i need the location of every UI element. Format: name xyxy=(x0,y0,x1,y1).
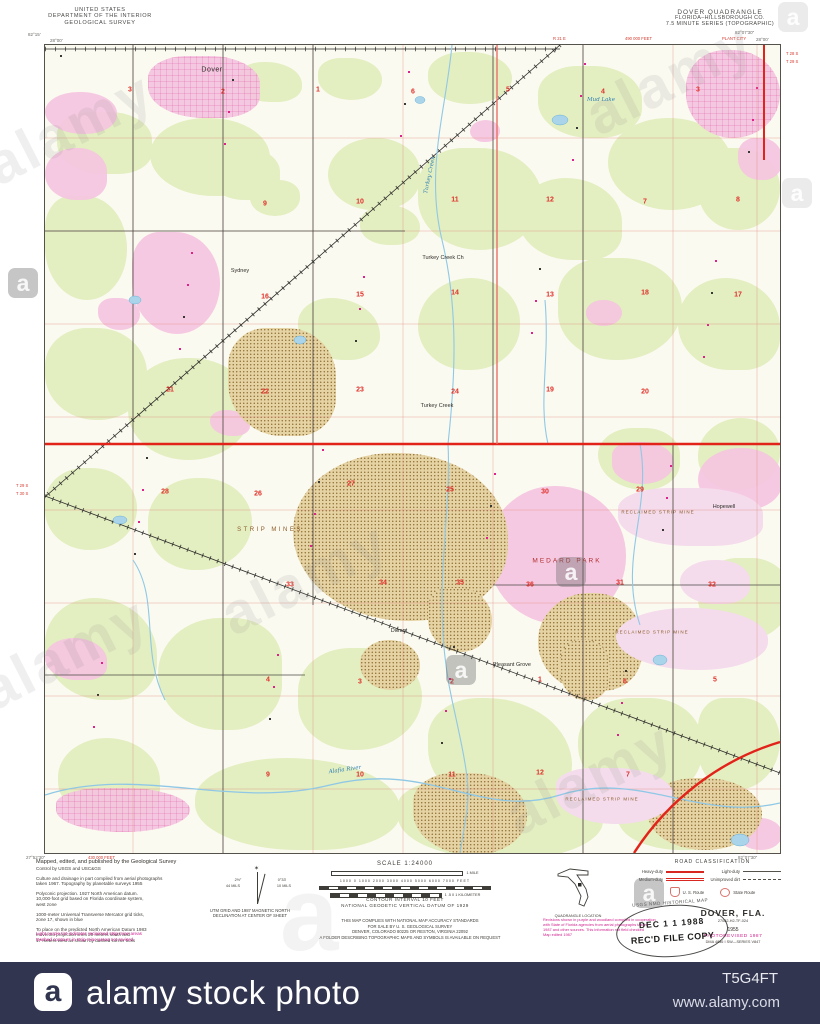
light-duty-sample xyxy=(743,871,781,872)
corner-coordinate: 28°00' xyxy=(50,38,63,43)
legend-title: ROAD CLASSIFICATION xyxy=(630,859,795,865)
corner-coordinate: 82°15' xyxy=(28,32,41,37)
credit-line: taken 1967. Topography by planetable sur… xyxy=(36,881,306,887)
legend-label: State Route xyxy=(733,890,755,895)
place-label: Sydney xyxy=(231,268,249,274)
unimproved-dirt-sample xyxy=(743,879,781,880)
township-label: T 29 S xyxy=(786,60,798,65)
corner-coordinate: 28°00' xyxy=(756,37,769,42)
heavy-duty-sample xyxy=(666,871,704,873)
alamy-logo-watermark: a xyxy=(446,655,476,685)
section-number: 11 xyxy=(451,197,458,204)
credit-line: west zone xyxy=(36,902,306,908)
file-copy-stamp: USGS NMD HISTORICAL MAP DEC 1 1 1988 REC… xyxy=(614,897,730,961)
place-label: Turkey Creek Ch xyxy=(422,255,463,261)
section-number: 6 xyxy=(411,89,415,96)
section-number: 6 xyxy=(623,679,627,686)
section-number: 23 xyxy=(356,387,364,394)
section-number: 15 xyxy=(356,292,364,299)
declination-value: 44 MILS xyxy=(218,884,248,888)
place-label: RECLAIMED STRIP MINE xyxy=(615,630,688,635)
section-number: 22 xyxy=(261,389,269,396)
alamy-logo-watermark: a xyxy=(634,878,664,908)
us-route-shield-icon xyxy=(670,887,680,897)
star-icon: ✶ xyxy=(254,865,259,872)
section-number: 36 xyxy=(526,582,534,589)
scale-bar xyxy=(319,886,491,891)
section-number: 26 xyxy=(254,491,262,498)
section-number: 19 xyxy=(546,387,554,394)
section-number: 34 xyxy=(379,580,387,587)
section-number: 21 xyxy=(166,387,174,394)
section-number: 10 xyxy=(356,772,364,779)
alamy-footer-bar: a alamy stock photo T5G4FT www.alamy.com xyxy=(0,962,820,1024)
place-label: STRIP MINES xyxy=(237,527,303,533)
section-number: 1 xyxy=(538,677,542,684)
map-linework xyxy=(45,45,780,853)
section-number: 31 xyxy=(616,580,624,587)
place-label: Durant xyxy=(391,628,408,634)
strip-mine-note-line: Dashed contours in strip mine areas not … xyxy=(36,937,142,943)
alamy-url: www.alamy.com xyxy=(673,994,780,1011)
section-number: 7 xyxy=(643,199,647,206)
section-number: 10 xyxy=(356,199,364,206)
section-number: 5 xyxy=(713,677,717,684)
credit-line: Control by USGS and USC&GS xyxy=(36,866,306,872)
declination-value: 2½° xyxy=(223,878,253,882)
agency-header: UNITED STATES DEPARTMENT OF THE INTERIOR… xyxy=(20,7,180,26)
stock-photo-page: UNITED STATES DEPARTMENT OF THE INTERIOR… xyxy=(0,0,820,1024)
section-number: 3 xyxy=(358,679,362,686)
section-number: 8 xyxy=(736,197,740,204)
feet-grid-label: 490 000 FEET xyxy=(625,37,652,42)
section-number: 1 xyxy=(316,87,320,94)
section-number: 16 xyxy=(261,294,269,301)
alamy-logo-watermark: a xyxy=(556,557,586,587)
section-number: 25 xyxy=(446,487,454,494)
strip-mine-notes: Light purple tint indicates reclaimed st… xyxy=(36,931,142,943)
map-photo: UNITED STATES DEPARTMENT OF THE INTERIOR… xyxy=(0,0,820,962)
scale-bar xyxy=(331,871,463,876)
quadrangle-location-inset: QUADRANGLE LOCATION xyxy=(548,866,608,918)
section-number: 5 xyxy=(506,87,510,94)
legend-label: Heavy-duty xyxy=(630,869,663,874)
legend-label: Light-duty xyxy=(707,869,740,874)
alamy-brand-text: alamy stock photo xyxy=(86,974,360,1012)
scale-unit: 1 MILE xyxy=(466,871,478,875)
place-label: Pleasant Grove xyxy=(493,662,531,668)
section-number: 29 xyxy=(636,487,644,494)
section-number: 24 xyxy=(451,389,459,396)
section-number: 27 xyxy=(347,481,355,488)
township-label: T 28 S xyxy=(786,52,798,57)
agency-line: GEOLOGICAL SURVEY xyxy=(20,20,180,26)
image-id: T5G4FT xyxy=(722,970,778,987)
place-label: Turkey Creek xyxy=(421,403,454,409)
section-number: 9 xyxy=(263,201,267,208)
section-number: 32 xyxy=(708,582,716,589)
township-label: T 29 S xyxy=(16,484,28,489)
place-label: RECLAIMED STRIP MINE xyxy=(621,510,694,515)
alamy-logo-watermark: a xyxy=(8,268,38,298)
section-number: 30 xyxy=(541,489,549,496)
section-number: 14 xyxy=(451,290,459,297)
place-label: Hopewell xyxy=(713,504,736,510)
section-number: 2 xyxy=(221,89,225,96)
legend-label: Unimproved dirt xyxy=(707,877,740,882)
florida-outline xyxy=(556,866,600,908)
credit-line: Mapped, edited, and published by the Geo… xyxy=(36,858,306,866)
section-number: 28 xyxy=(161,489,169,496)
alamy-logo-watermark: a xyxy=(778,2,808,32)
alamy-logo-watermark: a xyxy=(782,178,812,208)
alamy-watermark-letter: a xyxy=(280,855,338,975)
section-number: 4 xyxy=(266,677,270,684)
alamy-logo: a xyxy=(34,973,72,1011)
section-number: 13 xyxy=(546,292,554,299)
section-number: 35 xyxy=(456,580,464,587)
legend-label: U. S. Route xyxy=(683,890,705,895)
section-number: 17 xyxy=(734,292,742,299)
medium-duty-sample xyxy=(666,878,704,881)
range-label: R 21 E xyxy=(553,37,566,42)
section-number: 9 xyxy=(266,772,270,779)
map-area: 3332333132321654391011127816151413181721… xyxy=(45,45,780,853)
township-label: T 30 S xyxy=(16,492,28,497)
section-number: 20 xyxy=(641,389,649,396)
map-sheet: UNITED STATES DEPARTMENT OF THE INTERIOR… xyxy=(0,0,820,962)
section-number: 18 xyxy=(641,290,649,297)
place-label: Dover xyxy=(201,67,222,74)
railroad-lines xyxy=(45,45,780,773)
section-number: 12 xyxy=(546,197,554,204)
section-number: 11 xyxy=(448,772,455,779)
